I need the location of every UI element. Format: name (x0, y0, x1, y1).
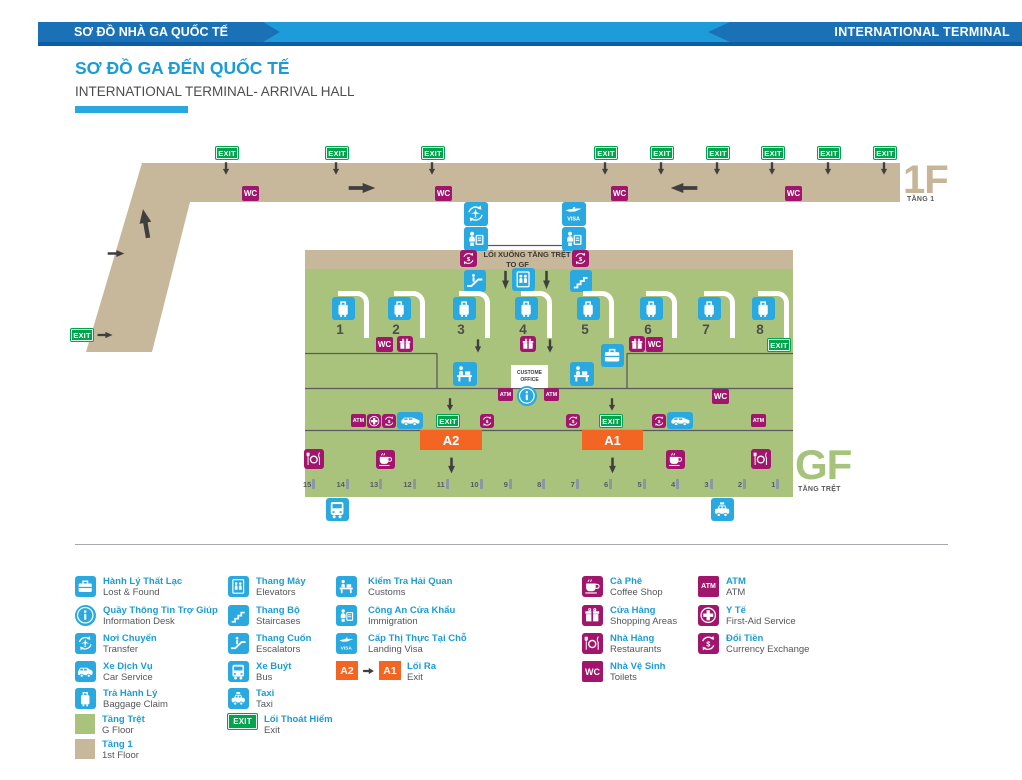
currency-icon: $ (382, 414, 396, 428)
atm-sign: ATM (498, 388, 513, 401)
gate-marker: 13 (370, 479, 382, 489)
customs-icon (570, 362, 594, 386)
legend-label-en: Immigration (368, 616, 455, 627)
legend-item-stairs: Thang BộStaircases (228, 605, 300, 628)
svg-text:VISA: VISA (568, 217, 581, 223)
baggage-carousel-icon (752, 297, 775, 320)
gift-icon (397, 336, 413, 352)
legend-item-exitbadge: EXITLối Thoát HiểmExit (228, 714, 333, 737)
legend-label-en: Bus (256, 672, 291, 683)
transfer-icon (464, 202, 488, 226)
currency-icon: $ (572, 250, 589, 267)
direction-arrow-icon (427, 161, 437, 176)
svg-text:$: $ (579, 257, 583, 263)
gate-marker: 9 (504, 479, 512, 489)
customs-icon (336, 576, 357, 597)
gate-number: 5 (638, 480, 642, 489)
gate-tick (379, 479, 382, 489)
svg-text:$: $ (467, 257, 471, 263)
gate-tick (710, 479, 713, 489)
gfloor-swatch (75, 714, 95, 734)
currency-icon: $ (480, 414, 494, 428)
stairs-icon (228, 605, 249, 626)
legend-label-vn: Hành Lý Thất Lạc (103, 576, 182, 587)
direction-arrow-icon (446, 456, 457, 475)
coffee-icon (376, 450, 395, 469)
legend-label-vn: Cửa Hàng (610, 605, 677, 616)
a1-exit-block: A1 (379, 661, 401, 680)
wc-sign: WC (582, 661, 603, 682)
gate-marker: 11 (437, 479, 449, 489)
carousel-number: 2 (385, 322, 407, 337)
atm-sign: ATM (751, 414, 766, 427)
legend-label-vn: Quầy Thông Tin Trợ Giúp (103, 605, 218, 616)
luggage-icon (75, 688, 96, 709)
gate-marker: 15 (303, 479, 315, 489)
gate-marker: 12 (403, 479, 415, 489)
exit-sign: EXIT (600, 415, 622, 427)
gate-tick (509, 479, 512, 489)
legend-label-vn: Cà Phê (610, 576, 663, 587)
legend-item-info: Quầy Thông Tin Trợ GiúpInformation Desk (75, 605, 218, 628)
lost-found-icon (75, 576, 96, 597)
carousel-number: 1 (329, 322, 351, 337)
gate-tick (312, 479, 315, 489)
legend-item-escalator: Thang CuốnEscalators (228, 633, 311, 656)
gate-number: 14 (336, 480, 344, 489)
direction-arrow-icon (500, 269, 511, 291)
legend-item-wcbadge: WCNhà Vệ SinhToilets (582, 661, 665, 684)
carousel-number: 4 (512, 322, 534, 337)
legend-item-bus: Xe BuýtBus (228, 661, 291, 684)
legend-label-vn: Cấp Thị Thực Tại Chỗ (368, 633, 467, 644)
atm-sign: ATM (698, 576, 719, 597)
currency-icon: $ (652, 414, 666, 428)
legend-item-firstaid: Y TếFirst-Aid Service (698, 605, 796, 628)
legend-label-vn: Công An Cửa Khẩu (368, 605, 455, 616)
legend-label-en: Currency Exchange (726, 644, 809, 655)
svg-text:$: $ (486, 419, 489, 425)
transfer-icon (75, 633, 96, 654)
baggage-carousel-icon (332, 297, 355, 320)
elevator-icon (512, 268, 535, 291)
legend-item-customs: Kiểm Tra Hải QuanCustoms (336, 576, 452, 599)
arrow-right-icon (362, 666, 375, 676)
exit-sign: EXIT (707, 147, 729, 159)
legend-label-vn: Y Tế (726, 605, 796, 616)
atm-sign: ATM (351, 414, 366, 427)
legend-label-en: ATM (726, 587, 746, 598)
gate-tick (346, 479, 349, 489)
gate-tick (542, 479, 545, 489)
baggage-carousel-icon (577, 297, 600, 320)
direction-arrow-icon (106, 248, 126, 259)
immigration-icon (562, 227, 586, 251)
legend-item-restaurant: Nhà HàngRestaurants (582, 633, 661, 656)
gate-tick (446, 479, 449, 489)
baggage-carousel-icon (453, 297, 476, 320)
legend-label-vn: Xe Buýt (256, 661, 291, 672)
visa-icon: VISA (336, 633, 357, 654)
gate-number: 2 (738, 480, 742, 489)
wc-sign: WC (712, 389, 729, 404)
direction-arrow-icon (712, 161, 722, 176)
car-icon (75, 661, 96, 682)
legend-label-en: Customs (368, 587, 452, 598)
legend-item-taxi: TaxiTaxi (228, 688, 274, 711)
gate-tick (480, 479, 483, 489)
exit-sign: EXIT (437, 415, 459, 427)
taxi-icon (711, 498, 734, 521)
direction-arrow-icon (96, 330, 114, 340)
direction-arrow-icon (331, 161, 341, 176)
legend-label-en: Landing Visa (368, 644, 467, 655)
floor-gf-label: GF (795, 441, 851, 489)
gate-number: 1 (771, 480, 775, 489)
visa-icon: VISA (562, 202, 586, 226)
gate-number: 8 (537, 480, 541, 489)
gate-marker: 2 (738, 479, 746, 489)
legend-item-currency: $Đổi TiềnCurrency Exchange (698, 633, 809, 656)
wc-sign: WC (242, 186, 259, 201)
carousel-number: 6 (637, 322, 659, 337)
legend-item-immigration: Công An Cửa KhẩuImmigration (336, 605, 455, 628)
wc-sign: WC (611, 186, 628, 201)
f1floor-swatch (75, 739, 95, 759)
currency-icon: $ (460, 250, 477, 267)
carousel-number: 7 (695, 322, 717, 337)
legend-label-en: Elevators (256, 587, 306, 598)
gate-marker: 7 (571, 479, 579, 489)
info-icon (75, 605, 96, 626)
gate-tick (743, 479, 746, 489)
legend-label-vn: Xe Dịch Vụ (103, 661, 153, 672)
svg-text:$: $ (388, 419, 391, 425)
direction-arrow-icon (541, 269, 552, 291)
direction-arrow-icon (346, 180, 378, 196)
direction-arrow-icon (767, 161, 777, 176)
exit-sign: EXIT (818, 147, 840, 159)
a2-exit-block: A2 (336, 661, 358, 680)
legend-label-en: Exit (264, 725, 333, 736)
bus-icon (228, 661, 249, 682)
legend-label-en: Information Desk (103, 616, 218, 627)
immigration-icon (336, 605, 357, 626)
legend-label-en: Baggage Claim (103, 699, 168, 710)
svg-text:$: $ (658, 419, 661, 425)
car-icon (667, 412, 693, 429)
info-icon (517, 386, 537, 406)
gate-marker: 3 (704, 479, 712, 489)
wc-sign: WC (376, 337, 393, 352)
restaurant-icon (582, 633, 603, 654)
gate-number: 15 (303, 480, 311, 489)
customs-office-box: CUSTOME OFFICE (511, 365, 548, 388)
wc-sign: WC (646, 337, 663, 352)
escalator-icon (228, 633, 249, 654)
gate-number: 13 (370, 480, 378, 489)
gate-number: 10 (470, 480, 478, 489)
floor-gf-sublabel: TẦNG TRỆT (798, 486, 841, 493)
firstaid-icon (698, 605, 719, 626)
legend-item-lost-found: Hành Lý Thất LạcLost & Found (75, 576, 182, 599)
direction-arrow-icon (445, 397, 455, 412)
exit-sign: EXIT (762, 147, 784, 159)
gate-marker: 14 (336, 479, 348, 489)
legend-label-vn: Kiểm Tra Hải Quan (368, 576, 452, 587)
stairs-icon (570, 270, 592, 292)
legend-label-vn: Lối Thoát Hiểm (264, 714, 333, 725)
direction-arrow-icon (600, 161, 610, 176)
exit-sign: EXIT (422, 147, 444, 159)
legend-label-en: Exit (407, 672, 436, 683)
currency-icon: $ (566, 414, 580, 428)
gate-number: 3 (704, 480, 708, 489)
gate-marker: 1 (771, 479, 779, 489)
legend-item-coffee: Cà PhêCoffee Shop (582, 576, 663, 599)
restaurant-icon (751, 449, 771, 469)
currency-icon: $ (698, 633, 719, 654)
exit-sign: EXIT (326, 147, 348, 159)
gate-tick (676, 479, 679, 489)
gate-number: 9 (504, 480, 508, 489)
legend-label-vn: Tầng Trệt (102, 714, 145, 725)
legend-label-en: Toilets (610, 672, 665, 683)
legend-label-en: G Floor (102, 725, 145, 736)
gate-tick (776, 479, 779, 489)
legend-item-visa: VISACấp Thị Thực Tại ChỗLanding Visa (336, 633, 467, 656)
carousel-number: 8 (749, 322, 771, 337)
legend-item-gift: Cửa HàngShopping Areas (582, 605, 677, 628)
gate-number: 11 (437, 480, 445, 489)
wc-sign: WC (435, 186, 452, 201)
carousel-number: 3 (450, 322, 472, 337)
legend-item-car: Xe Dịch VụCar Service (75, 661, 153, 684)
legend-label-en: Shopping Areas (610, 616, 677, 627)
coffee-icon (666, 450, 685, 469)
baggage-carousel-icon (388, 297, 411, 320)
legend-item-elevator: Thang MáyElevators (228, 576, 306, 599)
floor-1f-sublabel: TẦNG 1 (907, 196, 934, 203)
legend-label-vn: Trả Hành Lý (103, 688, 168, 699)
direction-arrow-icon (879, 161, 889, 176)
legend-label-vn: Thang Máy (256, 576, 306, 587)
legend-label-vn: Đổi Tiền (726, 633, 809, 644)
legend-label-vn: Thang Bộ (256, 605, 300, 616)
gate-tick (413, 479, 416, 489)
wc-sign: WC (785, 186, 802, 201)
legend-item-gfloor: Tầng TrệtG Floor (75, 714, 145, 737)
legend-label-en: Transfer (103, 644, 157, 655)
legend-label-vn: Nhà Vệ Sinh (610, 661, 665, 672)
baggage-carousel-icon (640, 297, 663, 320)
exit-sign: EXIT (71, 329, 93, 341)
direction-arrow-icon (607, 456, 618, 475)
legend-label-en: Car Service (103, 672, 153, 683)
legend-item-atmbadge: ATMATMATM (698, 576, 746, 599)
car-icon (397, 412, 423, 429)
gate-marker: 8 (537, 479, 545, 489)
gate-marker: 5 (638, 479, 646, 489)
gate-tick (576, 479, 579, 489)
gift-icon (582, 605, 603, 626)
firstaid-icon (367, 414, 381, 428)
atm-sign: ATM (544, 388, 559, 401)
international-terminal-map-page: SƠ ĐỒ NHÀ GA QUỐC TẾ INTERNATIONAL TERMI… (0, 0, 1022, 780)
a2-a1-exit-icons: A2A1 (336, 661, 401, 680)
elevator-icon (228, 576, 249, 597)
legend-item-luggage: Trả Hành LýBaggage Claim (75, 688, 168, 711)
escalator-icon (464, 270, 486, 292)
gate-marker: 10 (470, 479, 482, 489)
legend-label-en: First-Aid Service (726, 616, 796, 627)
legend-item-a2a1: A2A1Lối RaExit (336, 661, 436, 684)
baggage-carousel-icon (698, 297, 721, 320)
immigration-icon (464, 227, 488, 251)
legend-label-vn: Thang Cuốn (256, 633, 311, 644)
exit-sign: EXIT (651, 147, 673, 159)
legend-label-en: Escalators (256, 644, 311, 655)
legend-label-en: Taxi (256, 699, 274, 710)
gate-number: 12 (403, 480, 411, 489)
a2-exit-block: A2 (420, 430, 482, 450)
exit-sign: EXIT (216, 147, 238, 159)
coffee-icon (582, 576, 603, 597)
legend-label-vn: Nơi Chuyển (103, 633, 157, 644)
baggage-carousel-icon (515, 297, 538, 320)
carousel-number: 5 (574, 322, 596, 337)
direction-arrow-icon (607, 397, 617, 412)
legend-label-en: Restaurants (610, 644, 661, 655)
svg-text:VISA: VISA (341, 646, 353, 652)
direction-arrow-icon (545, 338, 555, 354)
gate-number: 4 (671, 480, 675, 489)
direction-arrow-icon (668, 180, 700, 196)
legend-label-en: Coffee Shop (610, 587, 663, 598)
gift-icon (629, 336, 645, 352)
exit-sign: EXIT (768, 339, 790, 351)
direction-arrow-icon (221, 161, 231, 176)
legend-label-vn: Nhà Hàng (610, 633, 661, 644)
gate-tick (609, 479, 612, 489)
exit-sign: EXIT (874, 147, 896, 159)
legend-label-vn: Lối Ra (407, 661, 436, 672)
direction-arrow-icon (473, 338, 483, 354)
direction-arrow-icon (823, 161, 833, 176)
exit-sign: EXIT (595, 147, 617, 159)
legend-label-en: 1st Floor (102, 750, 139, 761)
legend-divider (75, 544, 948, 545)
lost-found-icon (601, 344, 624, 367)
a1-exit-block: A1 (582, 430, 643, 450)
direction-arrow-icon (656, 161, 666, 176)
gate-marker: 6 (604, 479, 612, 489)
legend-label-vn: ATM (726, 576, 746, 587)
legend-item-transfer: Nơi ChuyểnTransfer (75, 633, 157, 656)
exit-sign: EXIT (228, 714, 257, 729)
legend-label-vn: Tầng 1 (102, 739, 139, 750)
restaurant-icon (304, 449, 324, 469)
legend-label-vn: Taxi (256, 688, 274, 699)
gift-icon (520, 336, 536, 352)
legend-label-en: Staircases (256, 616, 300, 627)
taxi-icon (228, 688, 249, 709)
legend-label-en: Lost & Found (103, 587, 182, 598)
bus-icon (326, 498, 349, 521)
gate-number: 6 (604, 480, 608, 489)
customs-icon (453, 362, 477, 386)
gate-number: 7 (571, 480, 575, 489)
gate-tick (643, 479, 646, 489)
svg-text:$: $ (572, 419, 575, 425)
svg-text:$: $ (706, 640, 710, 649)
gate-marker: 4 (671, 479, 679, 489)
legend-item-f1floor: Tầng 11st Floor (75, 739, 139, 762)
